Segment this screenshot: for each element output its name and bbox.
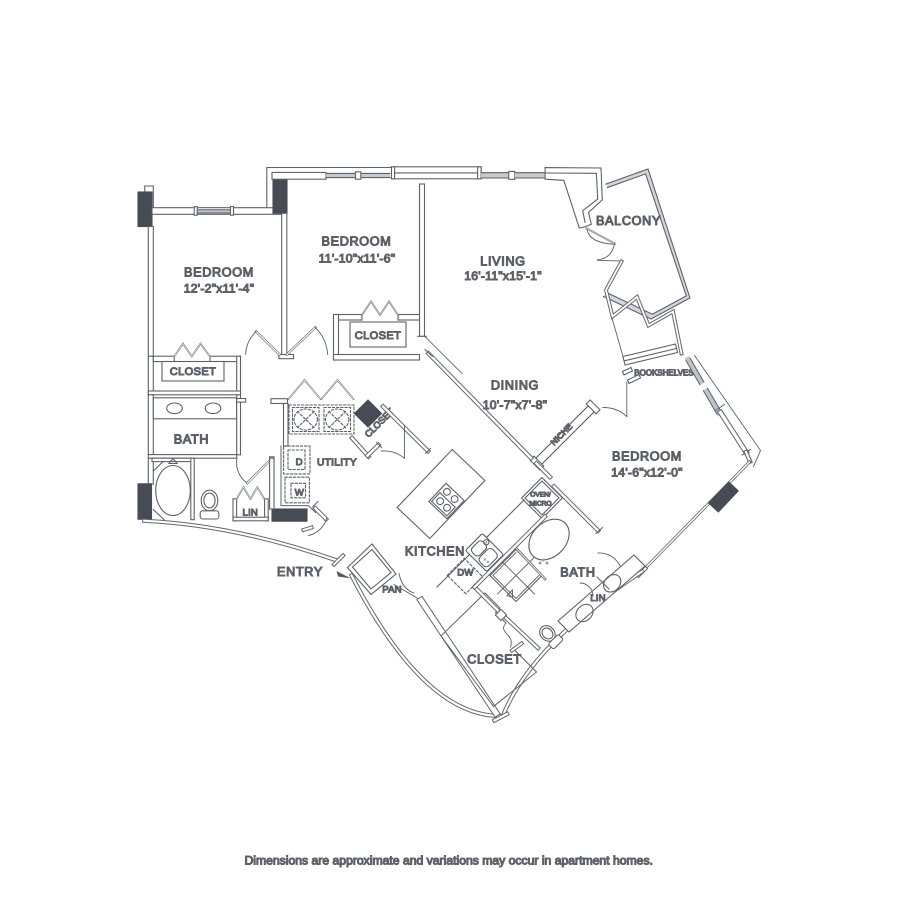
svg-text:CLOSET: CLOSET <box>467 652 522 666</box>
svg-text:BEDROOM: BEDROOM <box>184 265 254 279</box>
svg-text:ENTRY: ENTRY <box>277 565 323 579</box>
svg-text:DW: DW <box>457 568 474 579</box>
svg-text:LIN: LIN <box>590 593 606 604</box>
svg-text:LIVING: LIVING <box>480 254 526 268</box>
svg-text:UTILITY: UTILITY <box>317 457 357 468</box>
svg-text:BOOKSHELVES: BOOKSHELVES <box>634 369 693 378</box>
svg-text:BEDROOM: BEDROOM <box>322 234 392 248</box>
svg-text:CLOSET: CLOSET <box>355 330 401 342</box>
svg-text:KITCHEN: KITCHEN <box>405 544 465 558</box>
svg-text:Dimensions are approximate and: Dimensions are approximate and variation… <box>244 854 652 868</box>
svg-text:MICRO: MICRO <box>530 500 552 507</box>
svg-text:BALCONY: BALCONY <box>596 214 661 228</box>
svg-text:14'-6"x12'-0": 14'-6"x12'-0" <box>611 465 682 479</box>
svg-text:W: W <box>295 487 305 498</box>
svg-text:DINING: DINING <box>491 378 539 392</box>
svg-text:16'-11"x15'-1": 16'-11"x15'-1" <box>464 269 542 283</box>
svg-text:BEDROOM: BEDROOM <box>612 449 682 463</box>
svg-text:12'-2"x11'-4": 12'-2"x11'-4" <box>184 282 255 296</box>
svg-text:LIN: LIN <box>243 508 259 519</box>
svg-text:10'-7"x7'-8": 10'-7"x7'-8" <box>483 398 547 412</box>
svg-text:11'-10"x11'-6": 11'-10"x11'-6" <box>319 251 396 265</box>
svg-text:OVEN/: OVEN/ <box>530 491 551 498</box>
svg-text:CLOSET: CLOSET <box>170 366 216 378</box>
svg-text:PAN: PAN <box>382 584 402 595</box>
svg-text:BATH: BATH <box>174 432 209 446</box>
svg-text:BATH: BATH <box>560 565 595 579</box>
svg-text:D: D <box>296 457 303 468</box>
